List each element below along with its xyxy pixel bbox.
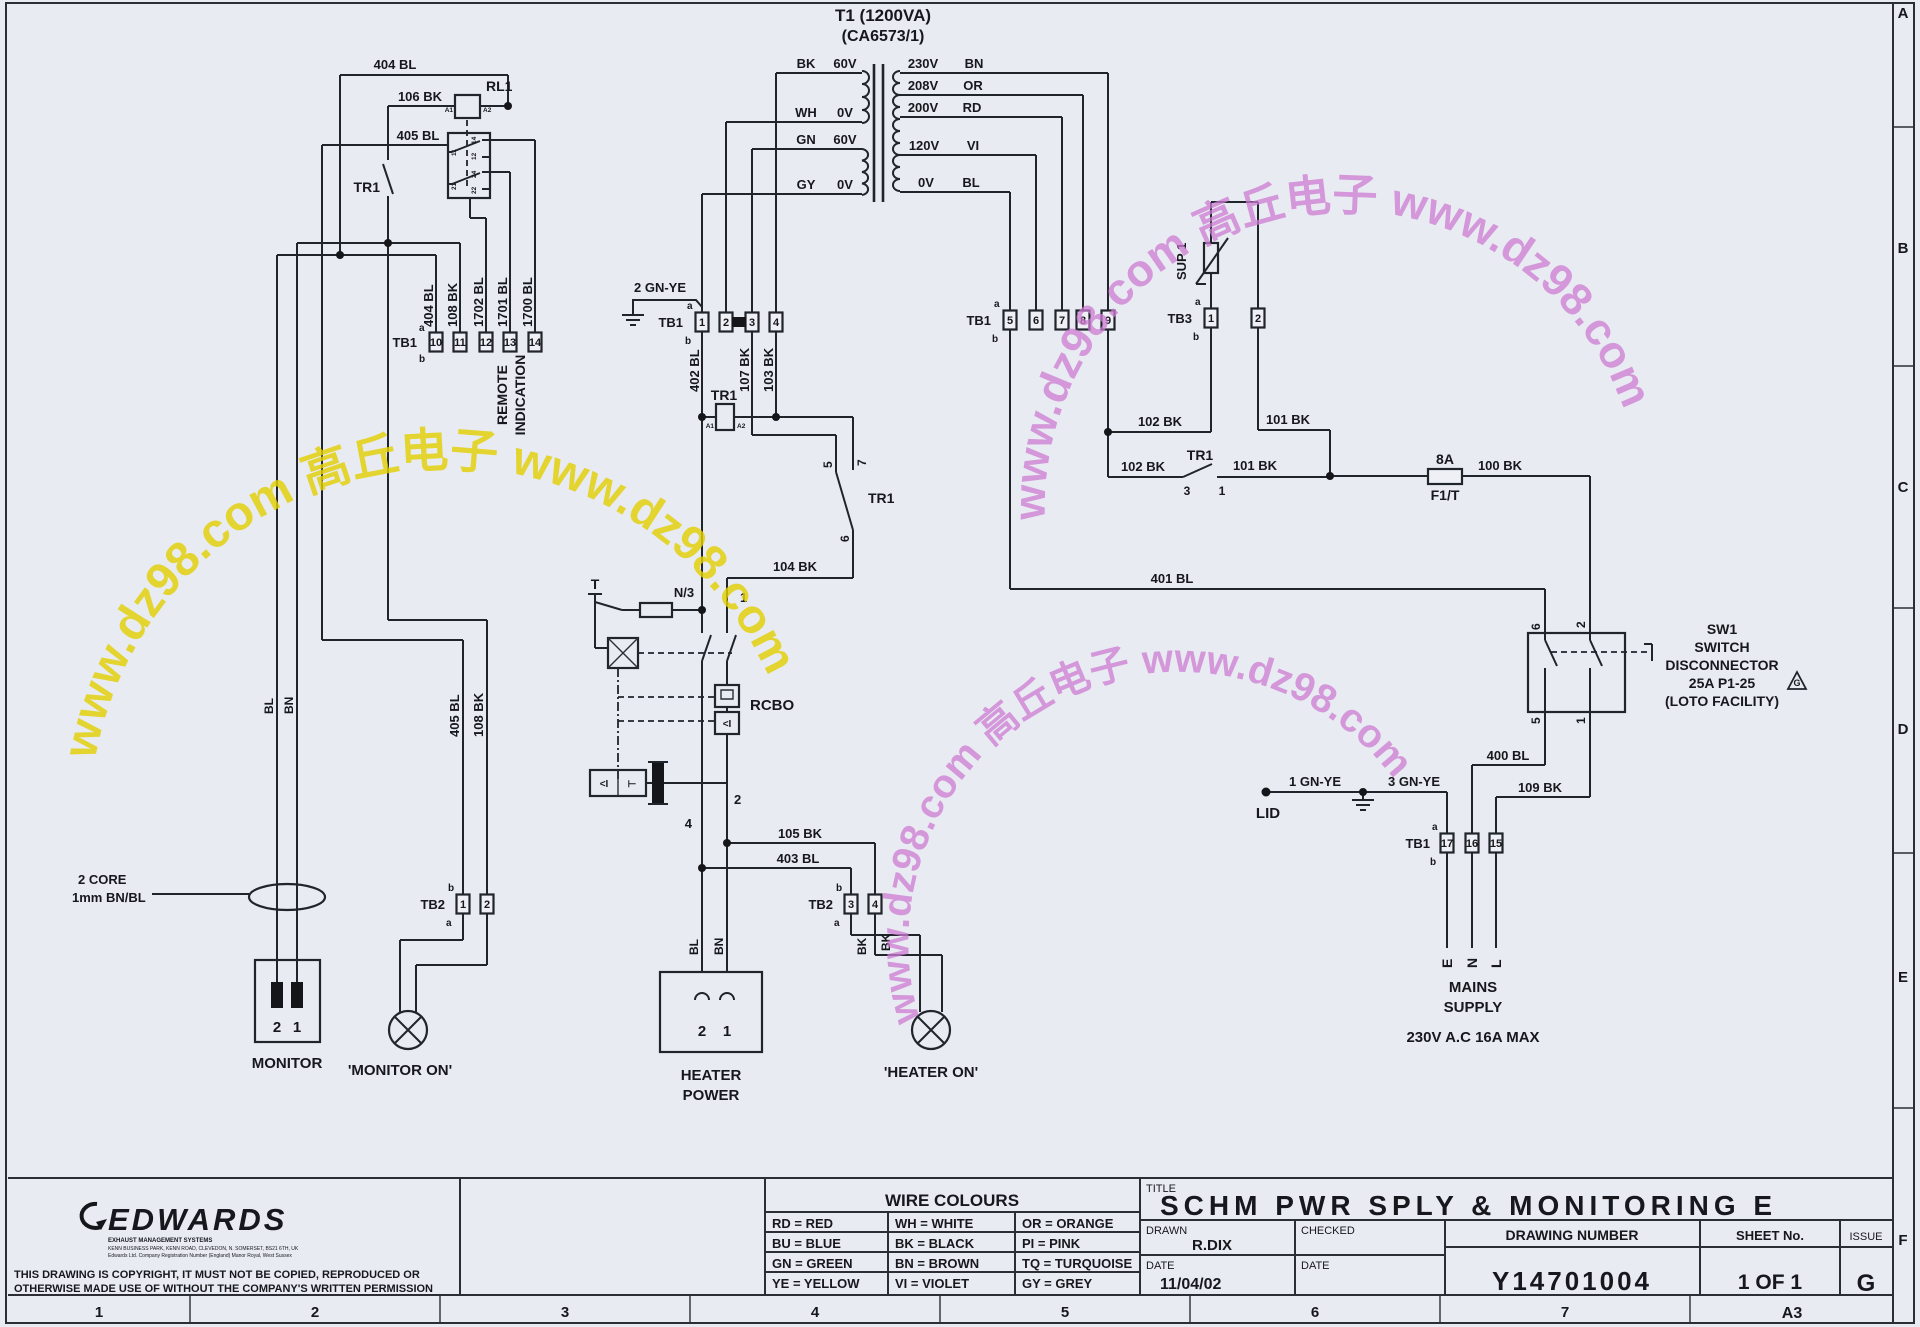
tb1-b-marker: b bbox=[419, 354, 425, 365]
heater-on-label: 'HEATER ON' bbox=[884, 1064, 978, 1081]
wc-rd: RD = RED bbox=[772, 1216, 833, 1231]
tb2-b-marker: b bbox=[836, 883, 842, 894]
frame-row-a: A bbox=[1898, 5, 1909, 22]
date-label: DATE bbox=[1146, 1260, 1175, 1272]
wire-102bk-label2: 102 BK bbox=[1121, 459, 1166, 474]
terminal-block-tb2-monitor: 1 2 TB2 b a 405 BL 108 BK 'MONITOR ON' 2… bbox=[72, 692, 494, 1079]
tb1-b-marker3: b bbox=[992, 334, 998, 345]
tb1-b-marker2: b bbox=[685, 336, 691, 347]
wire-101bk-label1: 101 BK bbox=[1266, 412, 1311, 427]
monitor-pin-1: 1 bbox=[293, 1019, 301, 1036]
frame-row-e: E bbox=[1898, 969, 1908, 986]
t1-sec-bl: BL bbox=[962, 175, 979, 190]
copyright-line1: THIS DRAWING IS COPYRIGHT, IT MUST NOT B… bbox=[14, 1269, 420, 1281]
tb2-term-2: 2 bbox=[484, 899, 490, 911]
sheet-label: SHEET No. bbox=[1736, 1228, 1804, 1243]
tb2-a-marker2: a bbox=[446, 918, 452, 929]
heater-power-label1: HEATER bbox=[681, 1067, 742, 1084]
frame-col-2: 2 bbox=[311, 1304, 319, 1321]
issue-label: ISSUE bbox=[1849, 1231, 1882, 1243]
wire-108bk-label: 108 BK bbox=[445, 282, 460, 327]
wc-bk: BK = BLACK bbox=[895, 1236, 975, 1251]
t1-sec-0v: 0V bbox=[918, 175, 934, 190]
tb1-term-12: 12 bbox=[480, 337, 492, 349]
tb2-term-3: 3 bbox=[848, 899, 854, 911]
drawing-number-label: DRAWING NUMBER bbox=[1506, 1227, 1639, 1243]
wire-402bl-label: 402 BL bbox=[687, 349, 702, 392]
tb2-label-heater: TB2 bbox=[808, 897, 833, 912]
monitor-on-label: 'MONITOR ON' bbox=[348, 1062, 452, 1079]
wc-gy: GY = GREY bbox=[1022, 1276, 1093, 1291]
tr1-contact-term-5: 5 bbox=[821, 461, 835, 468]
sw1-term-2: 2 bbox=[1574, 621, 1588, 628]
t1-title: T1 (1200VA) bbox=[835, 6, 931, 25]
wc-vi: VI = VIOLET bbox=[895, 1276, 969, 1291]
wc-pi: PI = PINK bbox=[1022, 1236, 1081, 1251]
mains-l-label: L bbox=[1488, 959, 1504, 968]
rcbo-label: RCBO bbox=[750, 697, 794, 714]
mains-rating-label: 230V A.C 16A MAX bbox=[1406, 1029, 1539, 1046]
schematic-drawing: T1 (1200VA) (CA6573/1) BK 60V WH 0V GN 6… bbox=[0, 0, 1920, 1327]
wire-103bk-label: 103 BK bbox=[761, 347, 776, 392]
t1-sec-208v: 208V bbox=[908, 78, 939, 93]
tr1-a1: A1 bbox=[706, 423, 715, 430]
rl1-term-12: 12 bbox=[471, 152, 478, 160]
wc-or: OR = ORANGE bbox=[1022, 1216, 1114, 1231]
rcbo-n3-label: N/3 bbox=[674, 585, 694, 600]
wire-bl-label-heater: BL bbox=[687, 939, 701, 955]
heater-power-label2: POWER bbox=[683, 1087, 740, 1104]
frame-col-5: 5 bbox=[1061, 1304, 1069, 1321]
frame-col-1: 1 bbox=[95, 1304, 103, 1321]
edwards-sub1: EXHAUST MANAGEMENT SYSTEMS bbox=[108, 1238, 212, 1244]
fuse-f1-icon bbox=[1428, 469, 1462, 484]
wire-107bk-label: 107 BK bbox=[737, 347, 752, 392]
rl1-label: RL1 bbox=[486, 78, 513, 94]
tr1-contact-left-label: TR1 bbox=[354, 179, 381, 195]
fuse-name-label: F1/T bbox=[1431, 487, 1460, 503]
terminal-block-tb1-remote: 10 11 12 13 14 TB1 a b 404 BL 108 BK 170… bbox=[392, 277, 542, 435]
tb2-term-1: 1 bbox=[460, 899, 466, 911]
relay-rl1: RL1 A1 A2 11 14 12 21 24 22 TR1 404 BL 1… bbox=[354, 57, 513, 198]
mains-e-label: E bbox=[1439, 959, 1455, 968]
sw1-label4: 25A P1-25 bbox=[1689, 675, 1756, 691]
remote-indication-label1: REMOTE bbox=[494, 365, 510, 425]
heater-pin-2: 2 bbox=[698, 1023, 706, 1040]
frame-row-f: F bbox=[1898, 1232, 1907, 1249]
svg-text:www.dz98.com 高丘电子 www.dz98.com: www.dz98.com 高丘电子 www.dz98.com bbox=[1003, 169, 1662, 521]
t1-primary-0v2: 0V bbox=[837, 177, 853, 192]
transformer-t1: T1 (1200VA) (CA6573/1) BK 60V WH 0V GN 6… bbox=[795, 6, 983, 202]
wire-2gnye-label: 2 GN-YE bbox=[634, 280, 686, 295]
t1-sec-bn: BN bbox=[965, 56, 984, 71]
tb1-label-primary: TB1 bbox=[658, 315, 683, 330]
wire-102bk-label1: 102 BK bbox=[1138, 414, 1183, 429]
mains-supply: LID 1 GN-YE 3 GN-YE 17 16 15 TB1 a b E N… bbox=[1256, 774, 1540, 1046]
t1-primary-60v: 60V bbox=[833, 56, 856, 71]
lid-label: LID bbox=[1256, 805, 1280, 822]
frame-col-3: 3 bbox=[561, 1304, 569, 1321]
frame-col-4: 4 bbox=[811, 1304, 820, 1321]
t1-sec-vi: VI bbox=[967, 138, 979, 153]
cable-2core-icon bbox=[249, 884, 325, 910]
mains-supply-label1: MAINS bbox=[1449, 979, 1497, 996]
wc-bu: BU = BLUE bbox=[772, 1236, 841, 1251]
rcbo-term-4: 4 bbox=[685, 816, 693, 831]
wire-bk-label1: BK bbox=[855, 937, 869, 955]
t1-sec-230v: 230V bbox=[908, 56, 939, 71]
tb3-term-1: 1 bbox=[1208, 313, 1214, 325]
t1-primary-0v: 0V bbox=[837, 105, 853, 120]
wire-bn-label-heater: BN bbox=[712, 938, 726, 955]
wire-bl-label-monitor: BL bbox=[262, 698, 276, 714]
tr1-mains-term-1: 1 bbox=[1219, 484, 1226, 498]
tb1-term-6: 6 bbox=[1033, 315, 1039, 327]
heater-pin-1: 1 bbox=[723, 1023, 731, 1040]
t1-sec-rd: RD bbox=[963, 100, 982, 115]
wire-100bk-label: 100 BK bbox=[1478, 458, 1523, 473]
tb1-term-14: 14 bbox=[529, 337, 542, 349]
sw1-label5: (LOTO FACILITY) bbox=[1665, 693, 1779, 709]
wire-401bl-label: 401 BL bbox=[1151, 571, 1194, 586]
tb1-label-remote: TB1 bbox=[392, 335, 417, 350]
tb1-term-3: 3 bbox=[749, 317, 755, 329]
frame-row-c: C bbox=[1898, 479, 1909, 496]
tb2-label-monitor: TB2 bbox=[420, 897, 445, 912]
title-block: WIRE COLOURS RD = RED WH = WHITE OR = OR… bbox=[14, 1178, 1893, 1297]
tb1-term-11: 11 bbox=[454, 337, 466, 349]
wc-bn: BN = BROWN bbox=[895, 1256, 979, 1271]
tb1-a-marker3: a bbox=[994, 299, 1000, 310]
wire-1gnye-label: 1 GN-YE bbox=[1289, 774, 1341, 789]
copyright-line2: OTHERWISE MADE USE OF WITHOUT THE COMPAN… bbox=[14, 1283, 433, 1295]
date-value: 11/04/02 bbox=[1160, 1276, 1222, 1293]
tb1-term-13: 13 bbox=[504, 337, 516, 349]
wire-1702bl-label: 1702 BL bbox=[471, 277, 486, 327]
sw1-term-1: 1 bbox=[1574, 717, 1588, 724]
wc-tq: TQ = TURQUOISE bbox=[1022, 1256, 1132, 1271]
tb1-b-marker4: b bbox=[1430, 857, 1436, 868]
rl1-term-14: 14 bbox=[471, 136, 478, 144]
rl1-term-11: 11 bbox=[451, 149, 458, 156]
sw1-label1: SW1 bbox=[1707, 621, 1738, 637]
rcbo: T N/3 1 <I RCBO <I ⊢ 2 4 105 BK 403 BL bbox=[590, 576, 823, 866]
wire-404bl-label2: 404 BL bbox=[421, 284, 436, 327]
wire-108bk-label2: 108 BK bbox=[471, 692, 486, 737]
drawing-number-value: Y14701004 bbox=[1492, 1266, 1652, 1296]
t1-sec-200v: 200V bbox=[908, 100, 939, 115]
t1-primary-wh: WH bbox=[795, 105, 817, 120]
tb1-a-marker2: a bbox=[687, 301, 693, 312]
wire-405bl-label2: 405 BL bbox=[447, 694, 462, 737]
sw1-term-5: 5 bbox=[1529, 717, 1543, 724]
t1-primary-gy: GY bbox=[797, 177, 816, 192]
tr1-mains-term-3: 3 bbox=[1184, 484, 1191, 498]
tr1-contact-label: TR1 bbox=[868, 490, 895, 506]
remote-indication-label2: INDICATION bbox=[512, 355, 528, 436]
issue-value: G bbox=[1857, 1270, 1876, 1297]
rl1-a2: A2 bbox=[483, 107, 492, 114]
rcbo-term-2: 2 bbox=[734, 792, 741, 807]
rcbo-magnetic-element-icon: <I bbox=[723, 719, 732, 730]
tb1-term-16: 16 bbox=[1466, 838, 1478, 850]
sw1-label3: DISCONNECTOR bbox=[1665, 657, 1778, 673]
wire-colours-title: WIRE COLOURS bbox=[885, 1191, 1019, 1210]
cable-2core-label1: 2 CORE bbox=[78, 872, 127, 887]
t1-sec-120v: 120V bbox=[909, 138, 940, 153]
revision-triangle-g: G bbox=[1793, 678, 1800, 688]
tb3-label: TB3 bbox=[1167, 311, 1192, 326]
wire-101bk-label2: 101 BK bbox=[1233, 458, 1278, 473]
wc-wh: WH = WHITE bbox=[895, 1216, 974, 1231]
wire-104bk-label: 104 BK bbox=[773, 559, 818, 574]
sheet-value: 1 OF 1 bbox=[1738, 1271, 1803, 1294]
tb1-term-17: 17 bbox=[1441, 838, 1453, 850]
tr1-contact-term-7: 7 bbox=[855, 459, 869, 466]
wire-403bl-label: 403 BL bbox=[777, 851, 820, 866]
wc-gn: GN = GREEN bbox=[772, 1256, 853, 1271]
sw1-label2: SWITCH bbox=[1694, 639, 1749, 655]
mains-n-label: N bbox=[1464, 958, 1480, 968]
fuse-rating-label: 8A bbox=[1436, 451, 1454, 467]
t1-sec-or: OR bbox=[963, 78, 983, 93]
wire-1700bl-label: 1700 BL bbox=[520, 277, 535, 327]
frame-col-6: 6 bbox=[1311, 1304, 1319, 1321]
rl1-term-24: 24 bbox=[471, 170, 478, 178]
terminal-block-tb2-heater: 3 4 TB2 b a BK BK 'HEATER ON' 2 1 HEATER… bbox=[660, 883, 978, 1104]
watermark-text-magenta-1: www.dz98.com 高丘电子 www.dz98.com bbox=[1003, 169, 1662, 521]
tb1-term-10: 10 bbox=[430, 337, 442, 349]
tb3-b-marker: b bbox=[1193, 332, 1199, 343]
schematic-sheet: T1 (1200VA) (CA6573/1) BK 60V WH 0V GN 6… bbox=[0, 0, 1920, 1327]
wire-106bk-label: 106 BK bbox=[398, 89, 443, 104]
sw1-box bbox=[1528, 633, 1625, 712]
mains-supply-label2: SUPPLY bbox=[1444, 999, 1503, 1016]
wire-109bk-label: 109 BK bbox=[1518, 780, 1563, 795]
rl1-a1: A1 bbox=[445, 107, 454, 114]
tb1-term-2: 2 bbox=[723, 317, 729, 329]
t1-part: (CA6573/1) bbox=[842, 28, 925, 45]
rcbo-sensor-icon: <I bbox=[600, 779, 609, 790]
t1-primary-gn: GN bbox=[796, 132, 816, 147]
wire-405bl-label: 405 BL bbox=[397, 128, 440, 143]
tb1-label-mains: TB1 bbox=[1405, 836, 1430, 851]
edwards-brand: EDWARDS bbox=[108, 1202, 287, 1237]
wire-404bl-label: 404 BL bbox=[374, 57, 417, 72]
tr1-mains-contact-label: TR1 bbox=[1187, 447, 1214, 463]
edwards-sub3: Edwards Ltd. Company Registration Number… bbox=[108, 1253, 292, 1259]
t1-primary-60v2: 60V bbox=[833, 132, 856, 147]
sheet-size-label: A3 bbox=[1782, 1305, 1803, 1322]
mains-switching: 102 BK 102 BK 101 BK 101 BK TR1 3 1 8A F… bbox=[1121, 412, 1806, 795]
frame-row-b: B bbox=[1898, 240, 1909, 257]
wire-1701bl-label: 1701 BL bbox=[495, 277, 510, 327]
edwards-sub2: KENN BUSINESS PARK, KENN ROAD, CLEVEDON,… bbox=[108, 1246, 299, 1252]
drawing-title: SCHM PWR SPLY & MONITORING E bbox=[1160, 1190, 1777, 1221]
date-label-2: DATE bbox=[1301, 1260, 1330, 1272]
sw1-term-6: 6 bbox=[1529, 623, 1543, 630]
tb2-b-marker2: b bbox=[448, 883, 454, 894]
svg-text:www.dz98.com 高丘电子 www.dz98.com: www.dz98.com 高丘电子 www.dz98.com bbox=[873, 636, 1421, 1029]
rcbo-sensor-icon2: ⊢ bbox=[628, 779, 637, 790]
sheet-frame: A B C D E F 1 2 3 4 5 6 7 A3 bbox=[6, 3, 1914, 1323]
tb1-term-5: 5 bbox=[1007, 315, 1013, 327]
tb3-a-marker: a bbox=[1195, 297, 1201, 308]
wire-400bl-label: 400 BL bbox=[1487, 748, 1530, 763]
tr1-a2: A2 bbox=[737, 423, 746, 430]
t1-primary-bk: BK bbox=[797, 56, 816, 71]
tb1-term-15: 15 bbox=[1490, 838, 1502, 850]
rl1-term-22: 22 bbox=[471, 186, 478, 194]
tb1-term-4: 4 bbox=[773, 317, 780, 329]
monitor-label: MONITOR bbox=[252, 1055, 323, 1072]
rl1-term-21: 21 bbox=[451, 182, 458, 190]
tb3-term-2: 2 bbox=[1255, 313, 1261, 325]
monitor-pin-2: 2 bbox=[273, 1019, 281, 1036]
tr1-coil-label: TR1 bbox=[711, 387, 738, 403]
cable-2core-label2: 1mm BN/BL bbox=[72, 890, 146, 905]
frame-col-7: 7 bbox=[1561, 1304, 1569, 1321]
tb1-label-secondary: TB1 bbox=[966, 313, 991, 328]
frame-row-d: D bbox=[1898, 721, 1909, 738]
tb1-term-1: 1 bbox=[699, 317, 705, 329]
drawn-value: R.DIX bbox=[1192, 1237, 1232, 1254]
rcbo-test-label: T bbox=[591, 576, 600, 592]
tb2-a-marker: a bbox=[834, 918, 840, 929]
checked-label: CHECKED bbox=[1301, 1225, 1355, 1237]
drawn-label: DRAWN bbox=[1146, 1225, 1187, 1237]
wire-bn-label-monitor: BN bbox=[282, 697, 296, 714]
tr1-contact-term-6: 6 bbox=[838, 535, 852, 542]
wc-ye: YE = YELLOW bbox=[772, 1276, 860, 1291]
tb1-a-marker4: a bbox=[1432, 822, 1438, 833]
watermark-text-magenta-2: www.dz98.com 高丘电子 www.dz98.com bbox=[873, 636, 1421, 1029]
wire-105bk-label: 105 BK bbox=[778, 826, 823, 841]
